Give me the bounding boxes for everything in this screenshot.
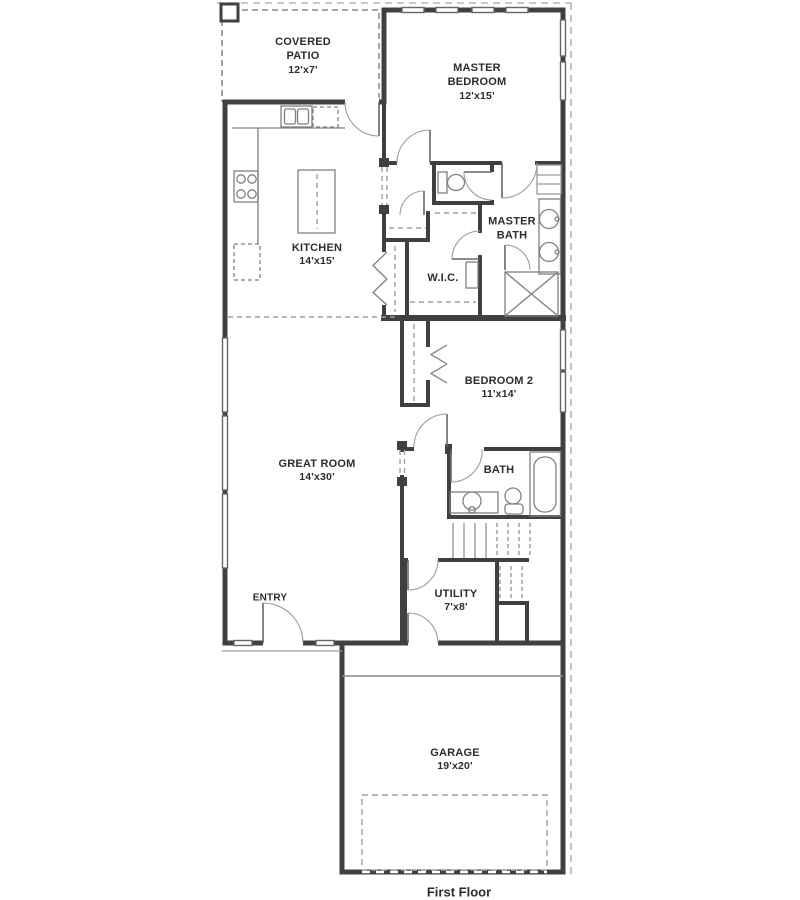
room-dims: 11'x14' bbox=[439, 388, 559, 402]
room-label-master-bath: MASTER BATH bbox=[480, 215, 544, 244]
entry-door-swing bbox=[263, 603, 303, 643]
room-label-kitchen: KITCHEN 14'x15' bbox=[262, 241, 372, 269]
room-name: GREAT ROOM bbox=[247, 457, 387, 471]
garage-door-apron bbox=[362, 795, 547, 870]
bedroom2-door-swing bbox=[414, 414, 447, 447]
dishwasher-icon bbox=[313, 107, 338, 127]
room-dims: 12'x7' bbox=[261, 63, 345, 77]
room-label-wic: W.I.C. bbox=[411, 271, 475, 285]
refrigerator-icon bbox=[234, 244, 260, 280]
room-label-bedroom-2: BEDROOM 2 11'x14' bbox=[439, 374, 559, 402]
kitchen-fixtures bbox=[232, 106, 387, 305]
toilet-icon-master bbox=[438, 172, 465, 193]
room-name: KITCHEN bbox=[262, 241, 372, 255]
room-name: BEDROOM 2 bbox=[439, 374, 559, 388]
dashed-openings bbox=[228, 167, 478, 477]
range-icon bbox=[234, 171, 258, 202]
room-dims: 19'x20' bbox=[400, 760, 510, 774]
shower-door-swing bbox=[505, 245, 530, 270]
bath-toilet-icon bbox=[505, 488, 523, 514]
room-name: MASTER BEDROOM bbox=[427, 61, 527, 90]
room-dims: 12'x15' bbox=[427, 89, 527, 103]
wic-door-swing bbox=[452, 231, 480, 259]
exterior-walls bbox=[225, 10, 563, 872]
wall-openings bbox=[263, 97, 535, 648]
cased-opening-greatroom-hall bbox=[400, 450, 405, 477]
room-name: UTILITY bbox=[411, 587, 501, 601]
room-name: MASTER BATH bbox=[480, 215, 544, 244]
floor-plan-title: First Floor bbox=[389, 885, 529, 900]
site-details bbox=[222, 651, 563, 872]
bath-fixtures bbox=[450, 452, 561, 516]
patio-door-swing bbox=[345, 102, 379, 136]
master-bath-door-swing bbox=[502, 163, 537, 198]
room-label-covered-patio: COVERED PATIO 12'x7' bbox=[261, 35, 345, 77]
bath-sink-icon bbox=[450, 492, 498, 513]
floor-plan: COVERED PATIO 12'x7' MASTER BEDROOM 12'x… bbox=[0, 0, 800, 900]
room-name: W.I.C. bbox=[411, 271, 475, 285]
roof-overhang-dashes bbox=[217, 3, 571, 878]
room-name: BATH bbox=[469, 463, 529, 477]
room-label-garage: GARAGE 19'x20' bbox=[400, 746, 510, 774]
room-label-master-bedroom: MASTER BEDROOM 12'x15' bbox=[427, 61, 527, 103]
room-dims: 14'x15' bbox=[262, 255, 372, 269]
room-name: ENTRY bbox=[235, 592, 305, 605]
room-label-great-room: GREAT ROOM 14'x30' bbox=[247, 457, 387, 485]
shower-icon bbox=[505, 272, 558, 316]
kitchen-sink-icon bbox=[281, 106, 312, 127]
coat-closet-door-swing bbox=[400, 191, 424, 215]
room-dims: 14'x30' bbox=[247, 471, 387, 485]
room-label-utility: UTILITY 7'x8' bbox=[411, 587, 501, 615]
linen-closet bbox=[537, 165, 561, 194]
bathtub-icon bbox=[530, 452, 561, 516]
room-name: COVERED PATIO bbox=[261, 35, 345, 64]
room-name: GARAGE bbox=[400, 746, 510, 760]
room-label-bath: BATH bbox=[469, 463, 529, 477]
interior-walls bbox=[342, 102, 563, 643]
patio-post bbox=[221, 4, 238, 21]
room-label-entry: ENTRY bbox=[235, 592, 305, 605]
room-dims: 7'x8' bbox=[411, 601, 501, 615]
